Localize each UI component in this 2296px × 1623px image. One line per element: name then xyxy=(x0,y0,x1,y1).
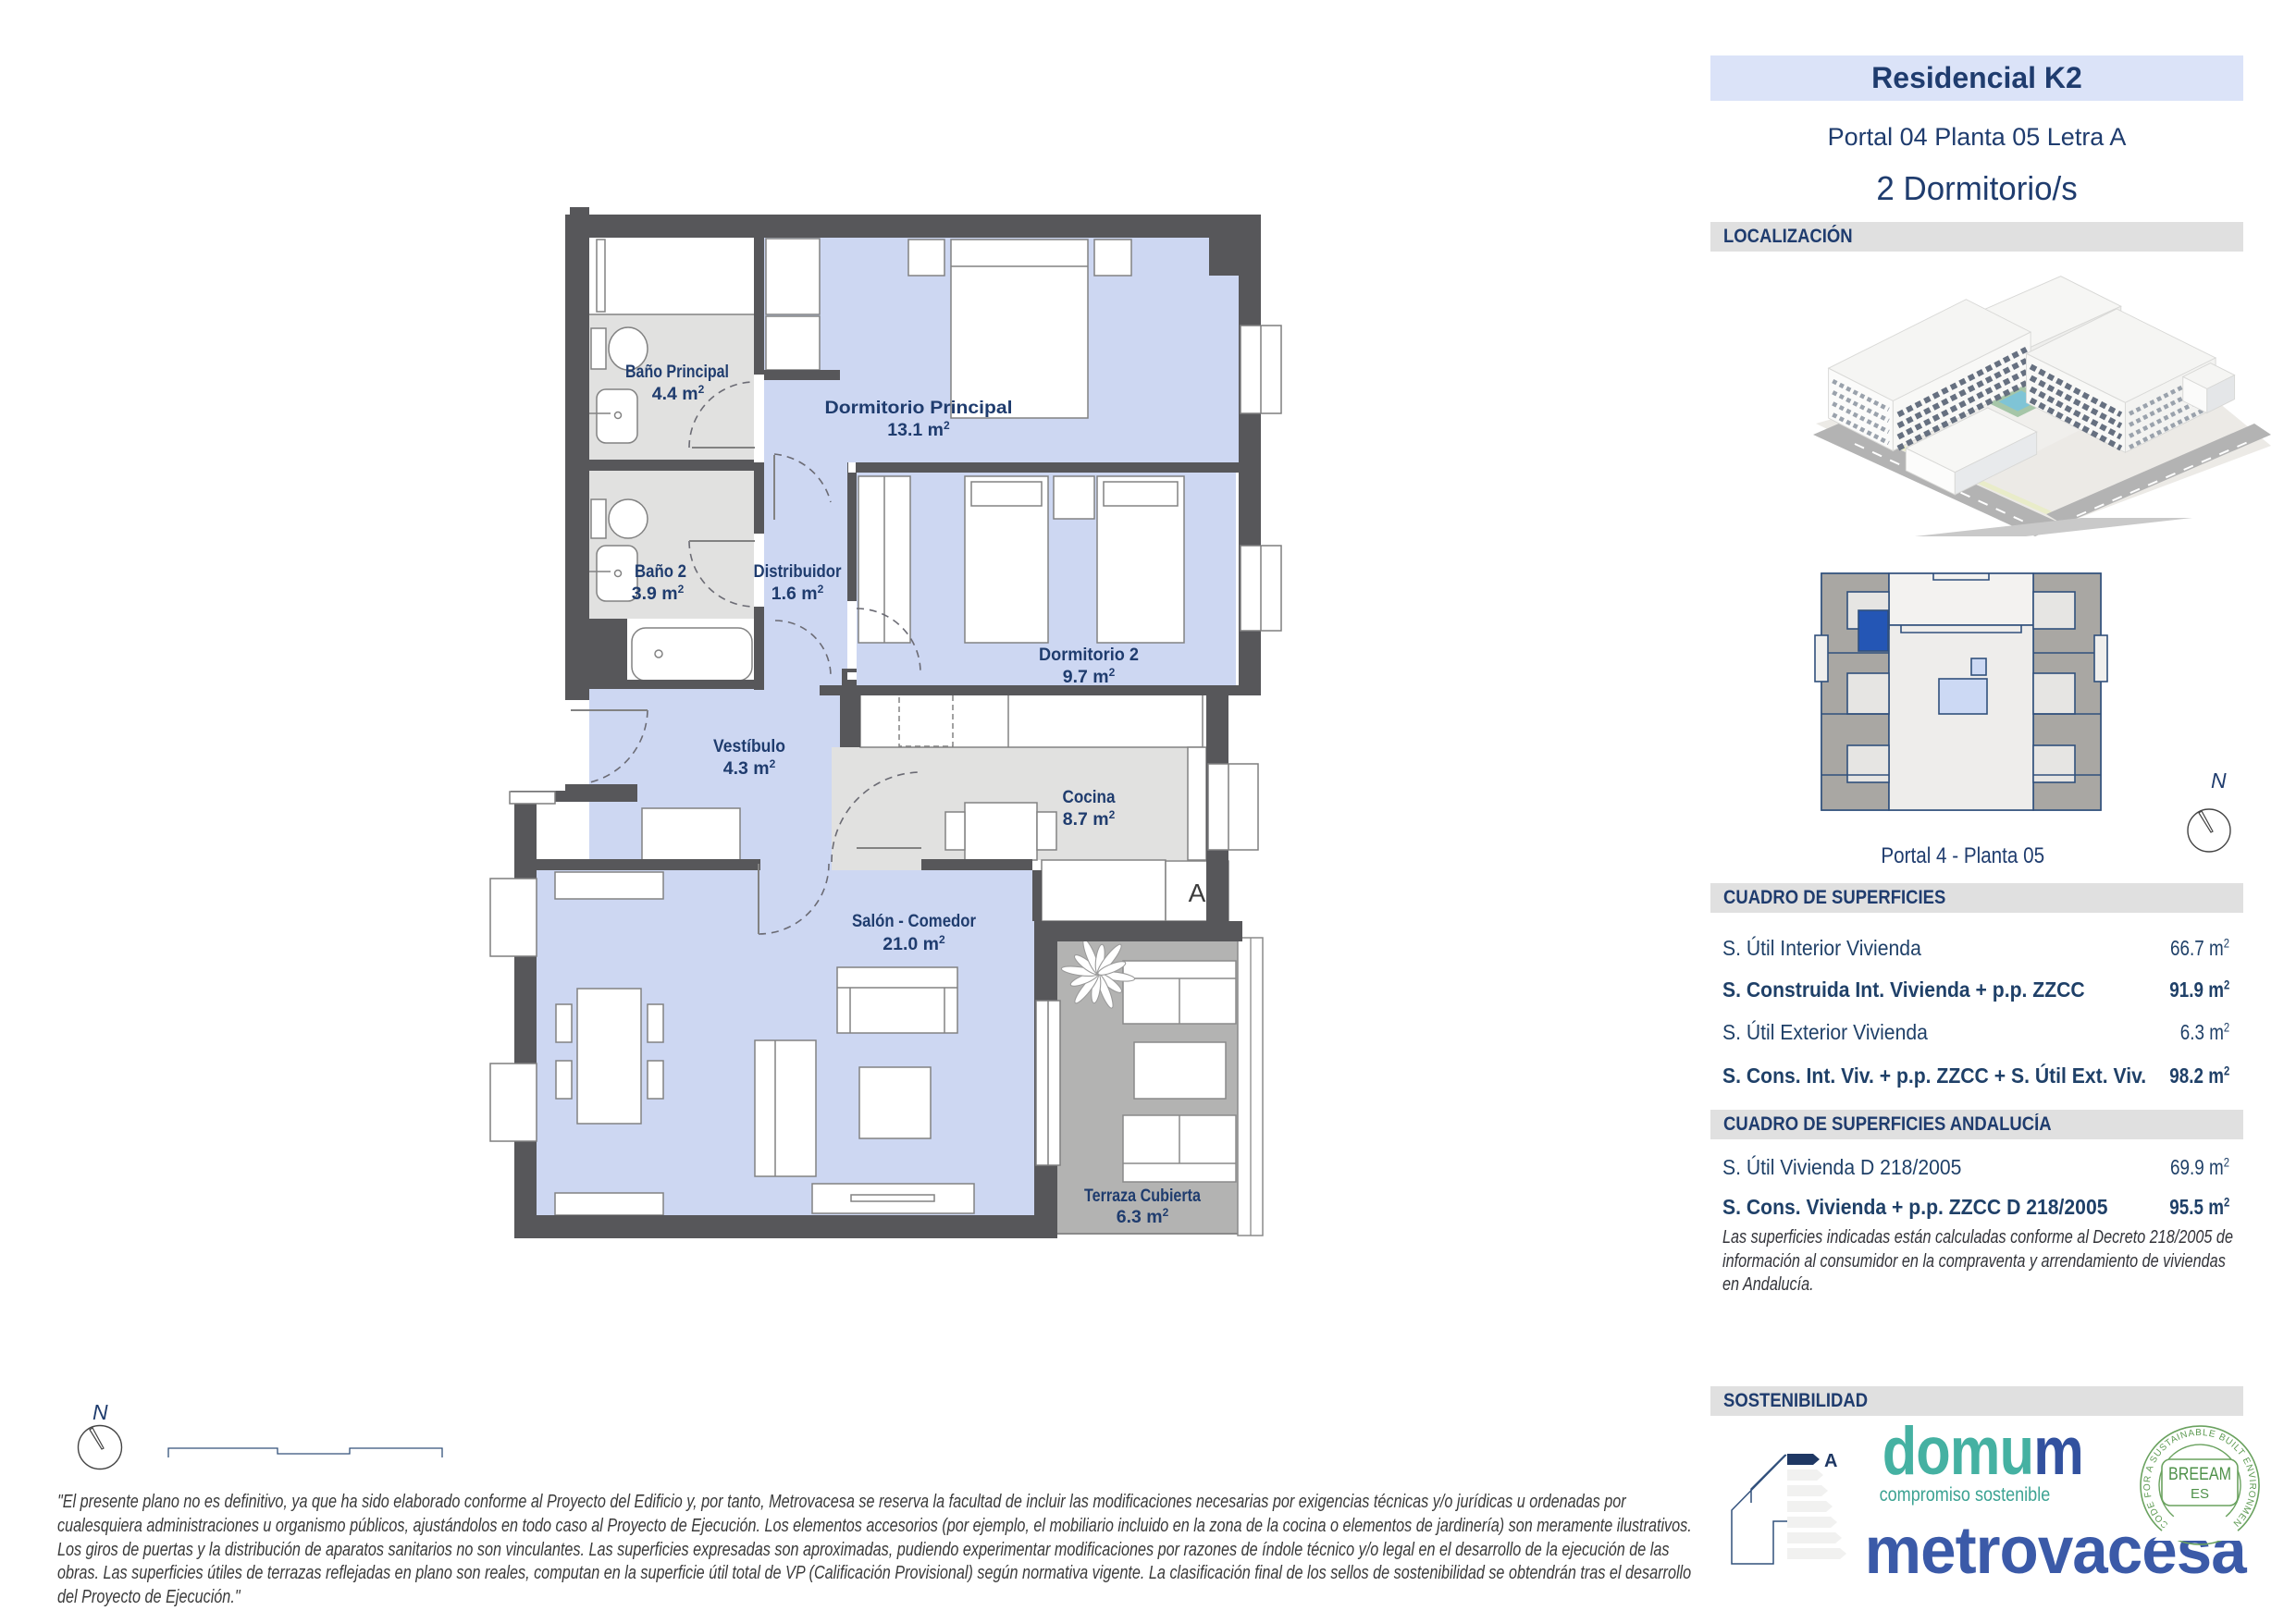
svg-text:Cocina: Cocina xyxy=(1063,787,1116,807)
svg-text:A: A xyxy=(1824,1451,1837,1471)
svg-text:Salón - Comedor: Salón - Comedor xyxy=(852,911,976,931)
svg-text:Dormitorio 2: Dormitorio 2 xyxy=(1039,645,1139,665)
svg-text:Terraza Cubierta: Terraza Cubierta xyxy=(1084,1186,1201,1206)
svg-text:3.9 m2: 3.9 m2 xyxy=(632,583,685,604)
svg-text:Baño Principal: Baño Principal xyxy=(625,362,729,382)
svg-text:N: N xyxy=(2211,768,2227,793)
svg-text:4.4 m2: 4.4 m2 xyxy=(652,383,705,404)
svg-text:ES: ES xyxy=(2191,1486,2209,1502)
svg-text:9.7 m2: 9.7 m2 xyxy=(1063,666,1116,687)
svg-text:4.3 m2: 4.3 m2 xyxy=(723,757,776,779)
svg-text:BREEAM: BREEAM xyxy=(2168,1465,2231,1484)
svg-text:21.0 m2: 21.0 m2 xyxy=(883,933,945,954)
svg-text:A: A xyxy=(1189,879,1206,907)
svg-text:Baño 2: Baño 2 xyxy=(635,561,686,582)
svg-text:Dormitorio Principal: Dormitorio Principal xyxy=(825,398,1013,418)
svg-text:Distribuidor: Distribuidor xyxy=(754,561,842,582)
svg-text:N: N xyxy=(93,1400,108,1424)
svg-text:8.7 m2: 8.7 m2 xyxy=(1063,808,1116,830)
svg-text:13.1 m2: 13.1 m2 xyxy=(887,419,950,440)
svg-text:6.3 m2: 6.3 m2 xyxy=(1117,1206,1169,1227)
svg-text:Vestíbulo: Vestíbulo xyxy=(713,736,785,756)
svg-text:1.6 m2: 1.6 m2 xyxy=(772,583,824,604)
